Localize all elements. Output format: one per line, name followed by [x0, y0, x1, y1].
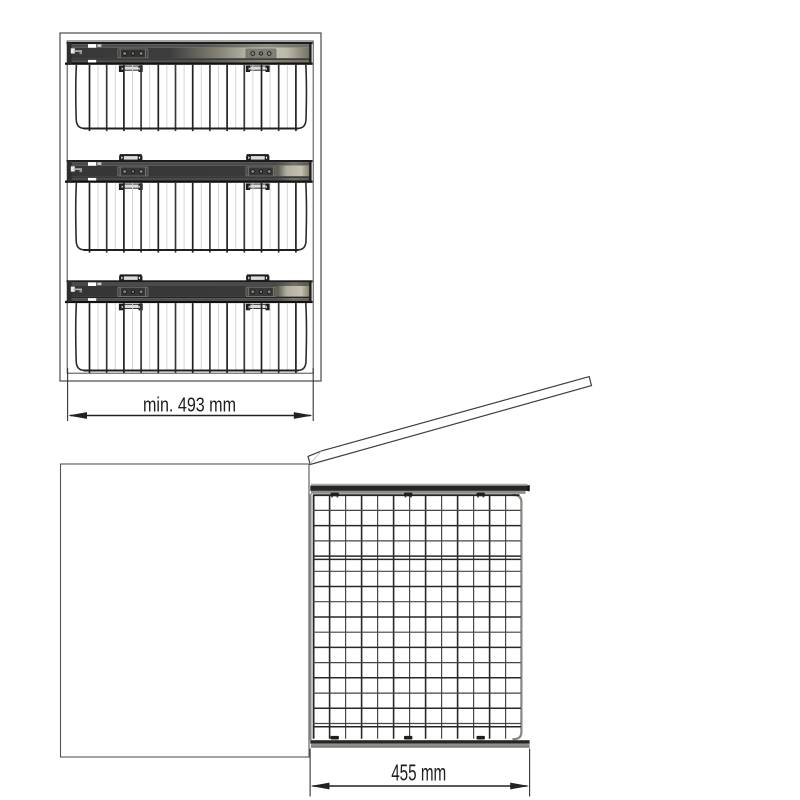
svg-text:455 mm: 455 mm — [391, 760, 446, 786]
svg-text:min. 493 mm: min. 493 mm — [143, 394, 236, 417]
